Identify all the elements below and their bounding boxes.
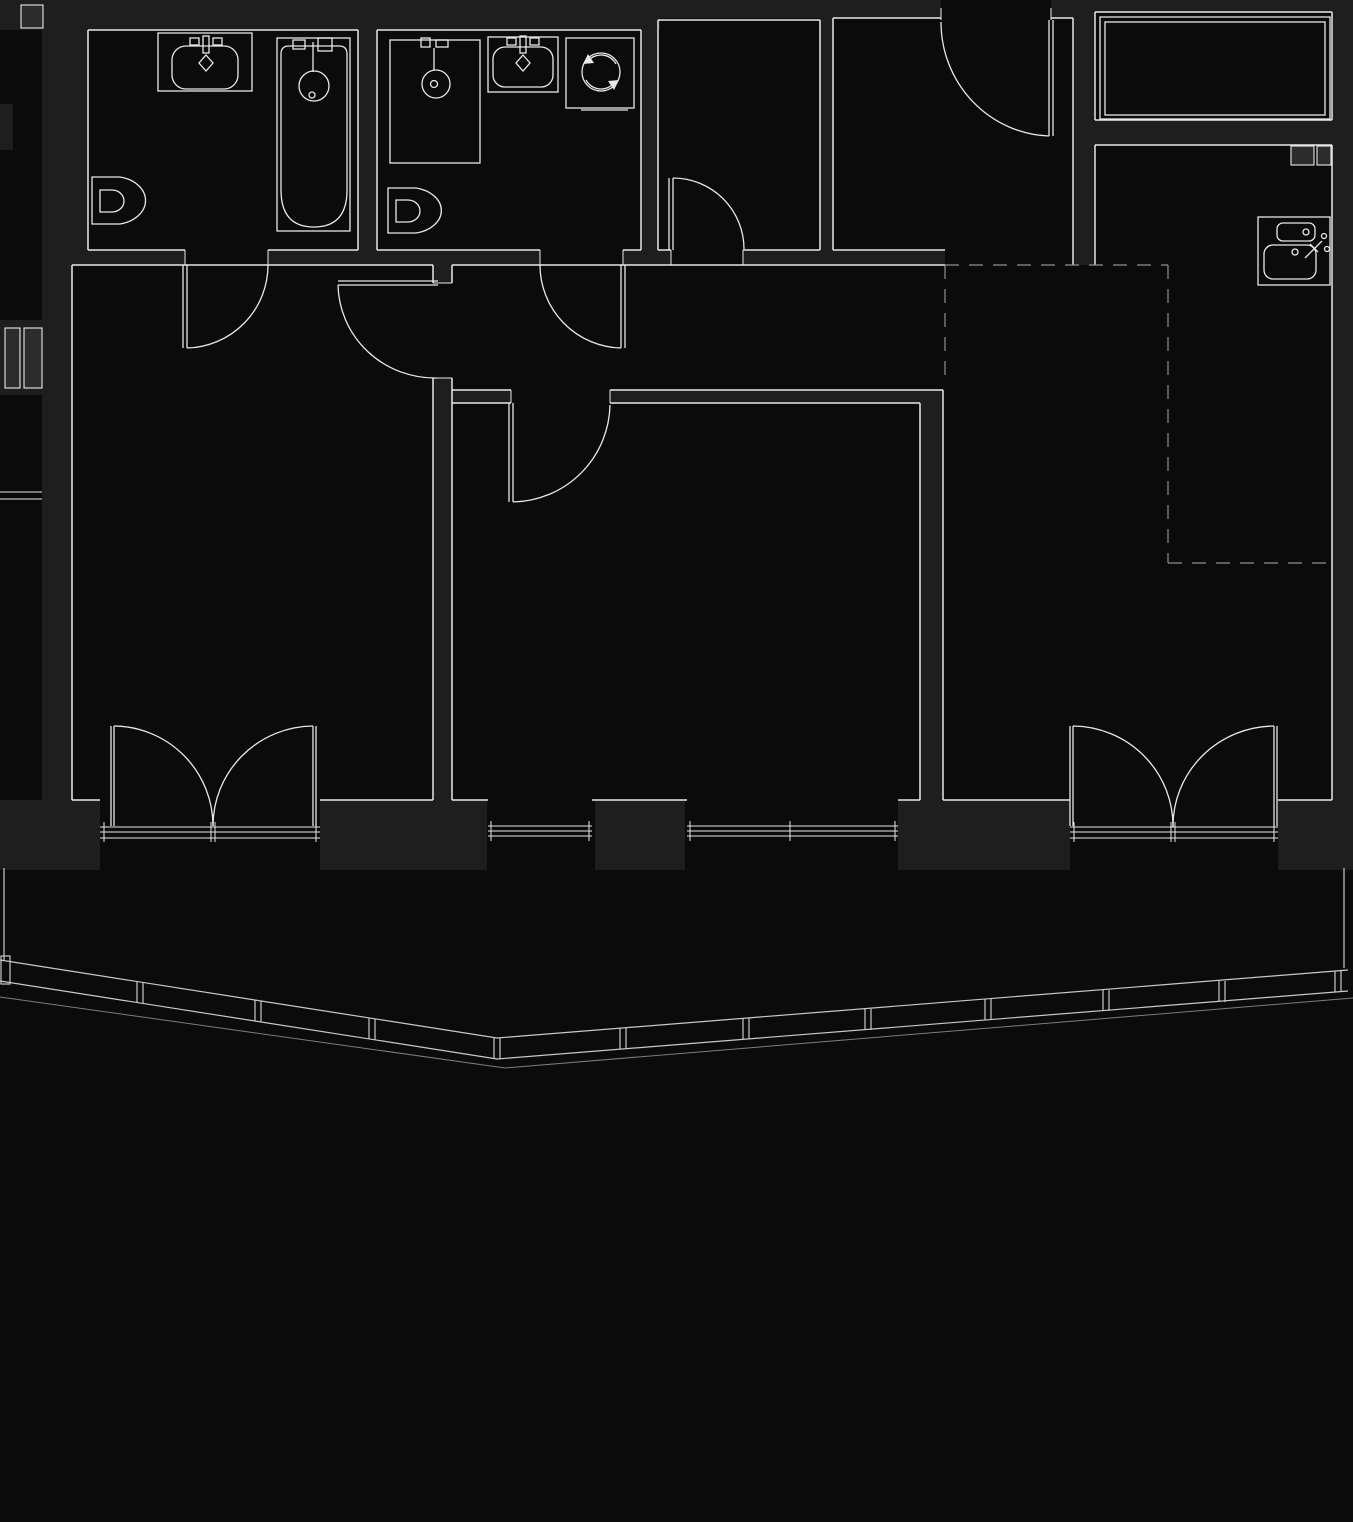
bathroom-1-outline (88, 30, 358, 250)
shaft-left (5, 328, 42, 388)
wall-segment (898, 800, 1070, 870)
drain-icon (1292, 249, 1298, 255)
wall-segment (1095, 120, 1332, 145)
shaft-right (1291, 146, 1331, 165)
wall-segment (42, 250, 72, 800)
walls (0, 0, 1353, 870)
drain-icon (199, 55, 213, 71)
wall-segment (0, 0, 660, 30)
living-kitchen-outline (943, 145, 1332, 800)
balcony-railing (0, 868, 1353, 1068)
wall-segment (0, 2, 13, 28)
wall-segment (433, 265, 452, 283)
floor-plan-page (0, 0, 1353, 1522)
balcony-floor-edge (0, 997, 1353, 1068)
bathroom-2-outline (377, 30, 641, 250)
shaft-cell (1291, 146, 1314, 165)
wall-segment (595, 800, 685, 870)
railing-bottom-rail (0, 981, 1348, 1059)
balcony-door-1-sill (100, 822, 320, 842)
wall-segment (1332, 12, 1353, 870)
toilet-2 (388, 188, 441, 233)
wall-segment (1073, 12, 1095, 265)
wall-segment (268, 250, 540, 265)
bathroom-1-door (183, 265, 268, 348)
wall-segment (452, 390, 511, 403)
faucet-icon (1305, 241, 1322, 258)
wardrobe (1100, 17, 1330, 119)
living-balcony-door (1070, 726, 1277, 827)
wall-segment (820, 18, 833, 250)
wall-segment (42, 28, 88, 250)
wall-segment (660, 0, 941, 18)
wall-segment (42, 250, 185, 265)
wall-segment (743, 250, 945, 265)
vanity-sink-2 (488, 36, 558, 92)
shaft-cell (24, 328, 42, 388)
kitchen-sink (1258, 217, 1330, 285)
wall-segment (623, 250, 671, 265)
bedroom-1-balcony-door (111, 726, 316, 826)
faucet-icon (520, 36, 526, 53)
drain-icon (422, 70, 450, 98)
wall-segment (641, 28, 658, 250)
wardrobe-room-outline (1095, 12, 1332, 120)
wall-segment (1095, 0, 1353, 12)
kitchen-zone-boundary (945, 265, 1332, 563)
bedroom-2-window-right (687, 821, 898, 841)
shaft-cell (5, 328, 20, 388)
wall-segment (433, 378, 452, 800)
bedroom-1-door (338, 281, 438, 378)
wall-segment (320, 800, 487, 870)
wall-segment (920, 390, 943, 800)
railing-top-rail (0, 960, 1348, 1038)
entry-door (941, 20, 1053, 136)
bedroom-2-outline (452, 403, 920, 800)
drain-icon (516, 55, 530, 71)
bathtub (277, 38, 350, 231)
wall-segment (1278, 800, 1353, 870)
railing-posts (137, 971, 1341, 1059)
bedroom-2-door (509, 403, 610, 502)
bedroom-2-window-left (488, 821, 592, 841)
hallway-outline (72, 265, 945, 800)
faucet-icon (203, 36, 209, 53)
floor-plan-drawing (0, 0, 1353, 1522)
shaft-cell (21, 5, 43, 28)
door-jambs (185, 250, 743, 403)
vanity-sink-1 (158, 33, 252, 91)
storage-closet-outline (658, 20, 820, 250)
wall-segment (358, 28, 377, 250)
wall-segment (0, 104, 13, 150)
entry-hall-outline (833, 8, 1073, 265)
toilet-1 (92, 177, 146, 224)
shaft-cell (1317, 146, 1331, 165)
drain-icon (1303, 229, 1309, 235)
closet-door (669, 178, 744, 250)
bathroom-2-door (540, 265, 625, 348)
shaft-top-left (21, 5, 43, 28)
shower-tray (390, 38, 480, 163)
wall-segment (610, 390, 943, 403)
wall-segment (0, 800, 100, 870)
living-balcony-door-sill (1070, 822, 1278, 842)
washing-machine (566, 38, 634, 110)
